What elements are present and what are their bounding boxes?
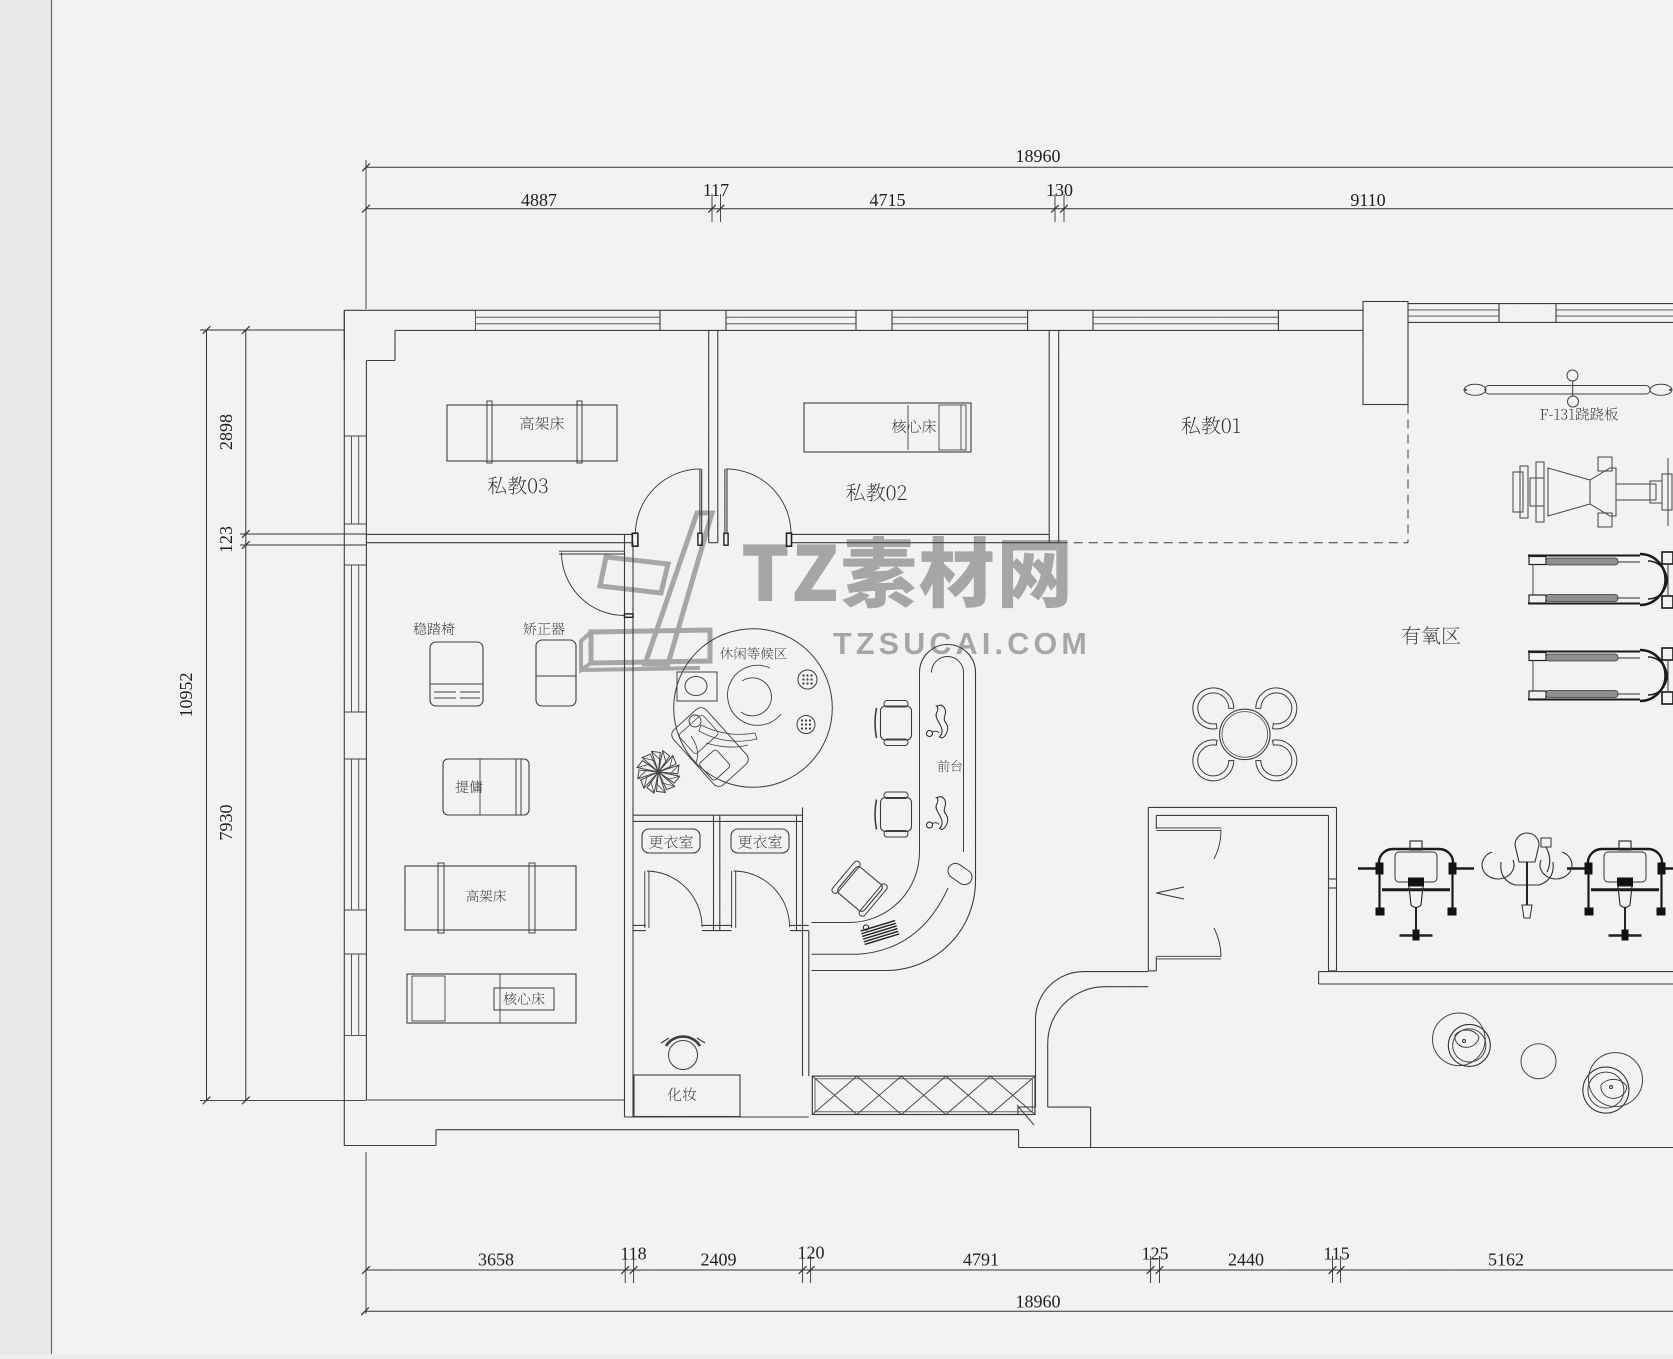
svg-text:7930: 7930 [216,805,236,841]
svg-text:4715: 4715 [870,190,906,210]
svg-text:2409: 2409 [701,1250,737,1270]
svg-text:4791: 4791 [963,1250,999,1270]
svg-text:130: 130 [1046,180,1073,200]
svg-text:4887: 4887 [521,190,557,210]
svg-text:2440: 2440 [1228,1250,1264,1270]
svg-text:9110: 9110 [1350,190,1385,210]
svg-text:115: 115 [1323,1244,1349,1264]
svg-text:2898: 2898 [216,414,236,450]
svg-text:120: 120 [798,1243,825,1263]
svg-text:117: 117 [703,180,729,200]
svg-text:10952: 10952 [176,673,196,718]
svg-text:TZSUCAI.COM: TZSUCAI.COM [833,627,1091,661]
svg-text:123: 123 [216,526,236,553]
svg-text:18960: 18960 [1016,1292,1061,1312]
svg-text:125: 125 [1142,1244,1169,1264]
svg-text:5162: 5162 [1488,1250,1524,1270]
svg-text:3658: 3658 [478,1250,514,1270]
svg-text:118: 118 [620,1244,646,1264]
svg-text:18960: 18960 [1016,146,1061,166]
